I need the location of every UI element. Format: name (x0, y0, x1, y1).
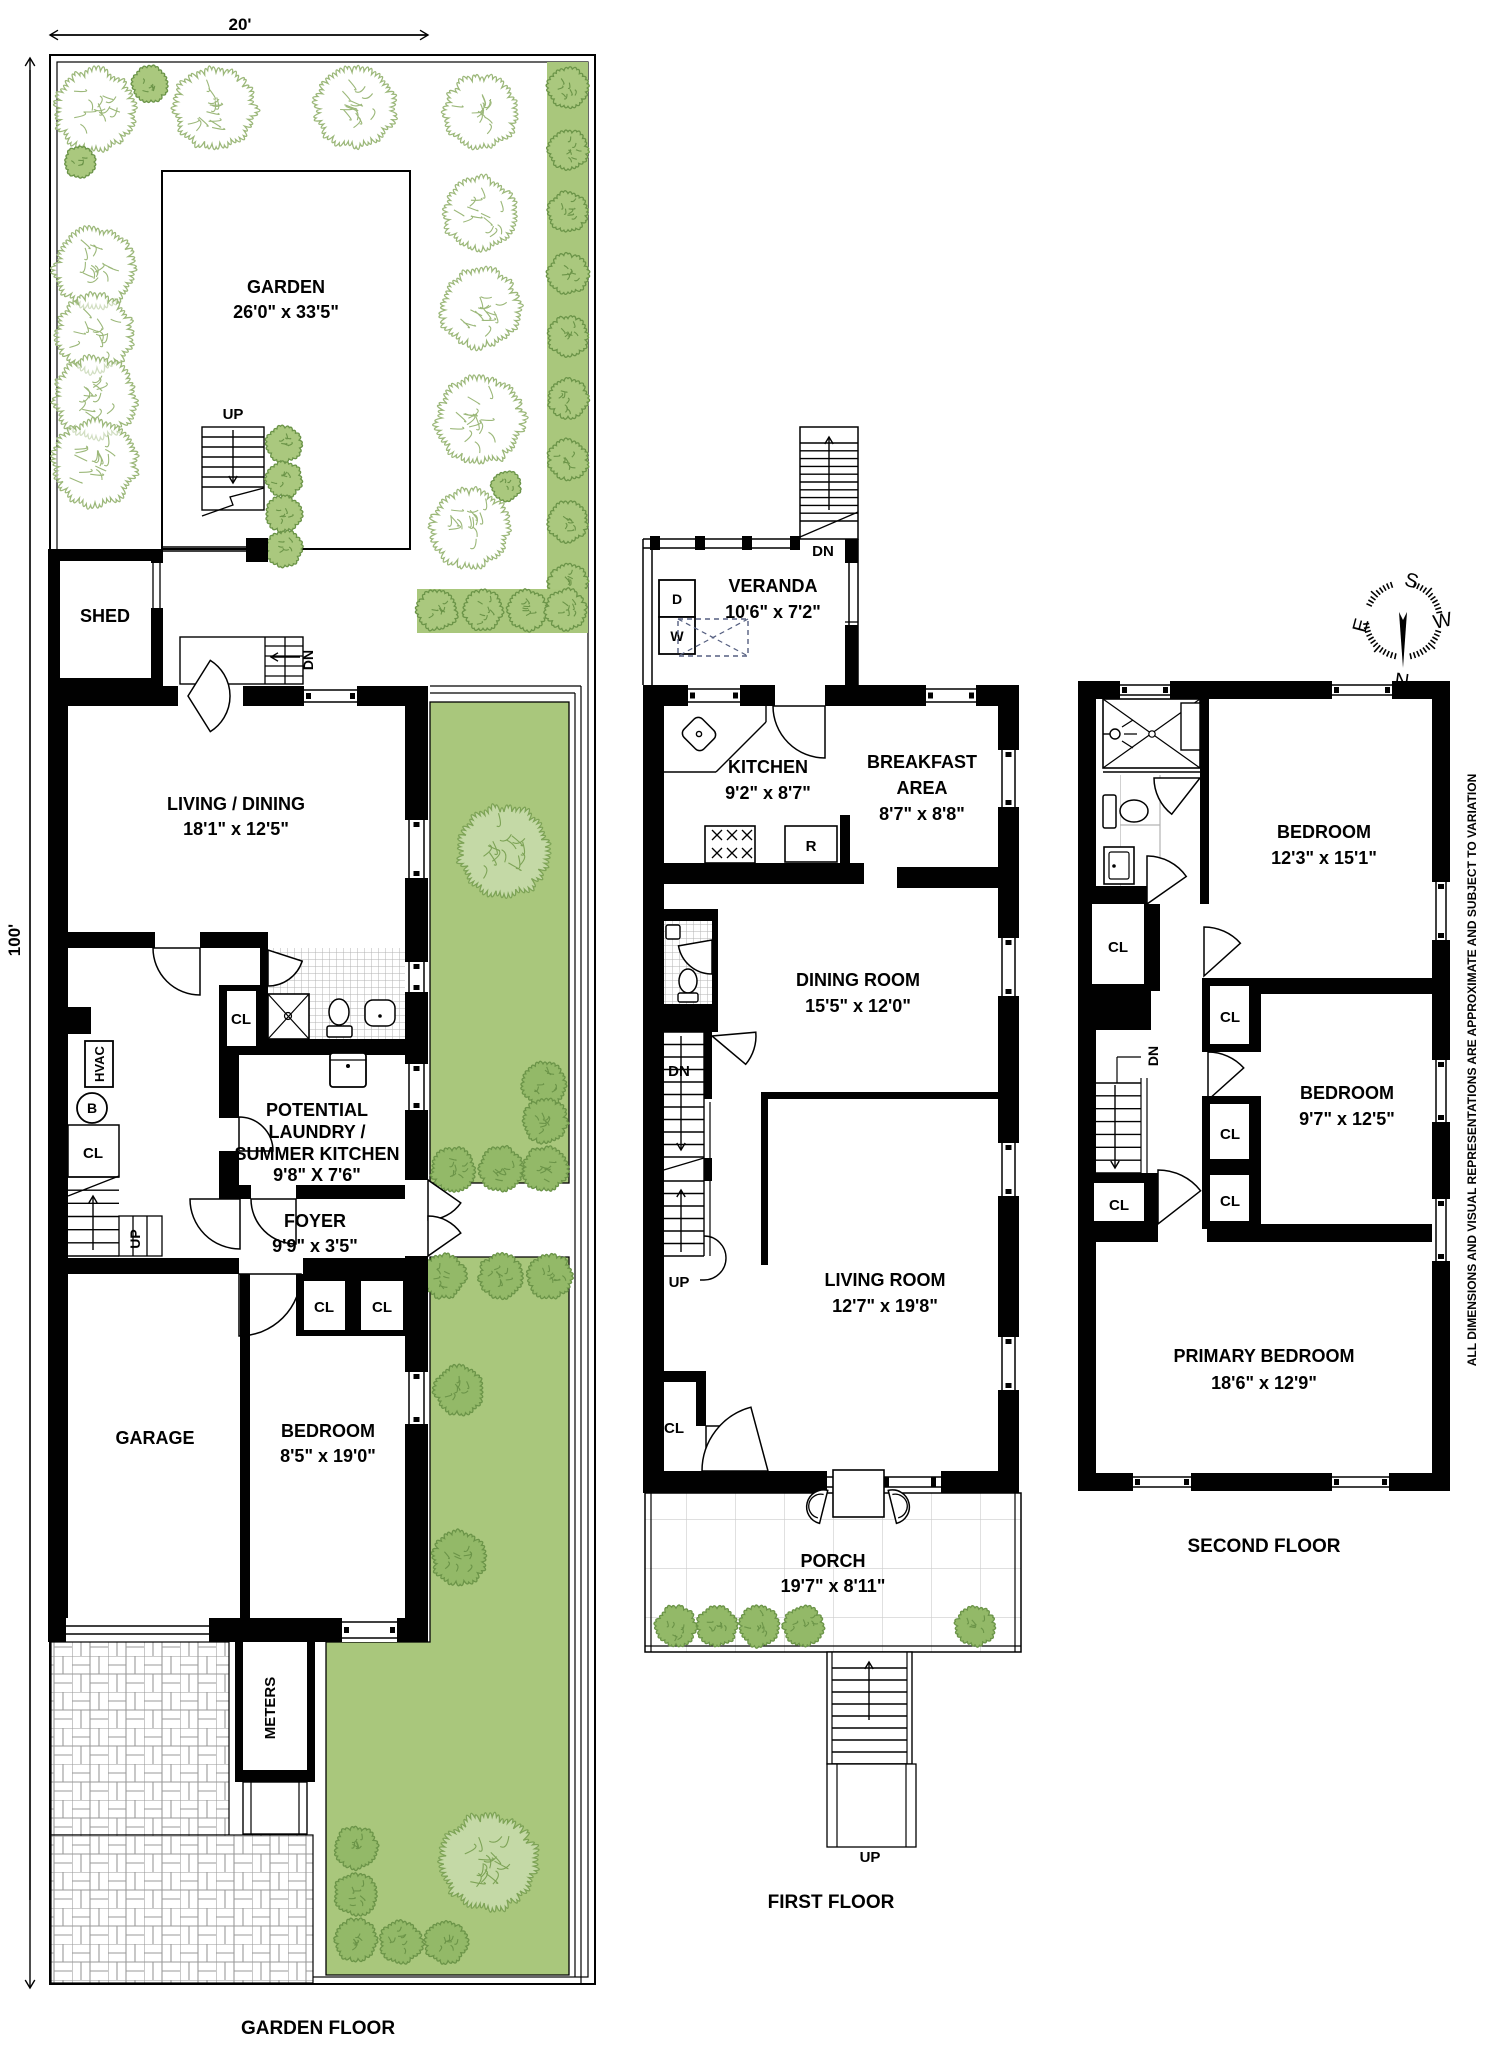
svg-text:B: B (87, 1100, 97, 1116)
svg-text:18'1" x 12'5": 18'1" x 12'5" (183, 819, 289, 839)
svg-text:CL: CL (1220, 1009, 1240, 1026)
svg-text:R: R (806, 838, 817, 855)
svg-text:SUMMER KITCHEN: SUMMER KITCHEN (235, 1144, 400, 1164)
svg-text:FIRST FLOOR: FIRST FLOOR (768, 1892, 895, 1913)
svg-text:UP: UP (860, 1849, 881, 1866)
svg-text:UP: UP (669, 1274, 690, 1291)
svg-text:9'2" x 8'7": 9'2" x 8'7" (725, 783, 811, 803)
svg-text:BEDROOM: BEDROOM (281, 1421, 375, 1441)
svg-text:GARDEN: GARDEN (247, 277, 325, 297)
svg-text:UP: UP (127, 1229, 143, 1248)
svg-text:DN: DN (1145, 1046, 1161, 1066)
svg-text:SHED: SHED (80, 606, 130, 626)
svg-text:100': 100' (5, 924, 24, 956)
svg-text:CL: CL (664, 1420, 684, 1437)
svg-text:METERS: METERS (262, 1677, 279, 1740)
svg-text:LIVING / DINING: LIVING / DINING (167, 794, 305, 814)
svg-text:CL: CL (1108, 939, 1128, 956)
svg-text:10'6" x 7'2": 10'6" x 7'2" (725, 602, 821, 622)
svg-text:CL: CL (83, 1145, 103, 1162)
svg-text:SECOND FLOOR: SECOND FLOOR (1187, 1536, 1340, 1557)
svg-text:9'9" x 3'5": 9'9" x 3'5" (272, 1236, 358, 1256)
svg-text:PRIMARY BEDROOM: PRIMARY BEDROOM (1173, 1346, 1354, 1366)
svg-text:12'3" x 15'1": 12'3" x 15'1" (1271, 848, 1377, 868)
svg-text:DN: DN (668, 1063, 690, 1080)
svg-text:CL: CL (231, 1011, 251, 1028)
svg-text:26'0" x 33'5": 26'0" x 33'5" (233, 302, 339, 322)
svg-text:ALL DIMENSIONS AND VISUAL REPR: ALL DIMENSIONS AND VISUAL REPRESENTATION… (1465, 774, 1479, 1367)
svg-text:9'7" x 12'5": 9'7" x 12'5" (1299, 1109, 1395, 1129)
svg-text:GARAGE: GARAGE (115, 1428, 194, 1448)
svg-text:CL: CL (1220, 1126, 1240, 1143)
svg-text:POTENTIAL: POTENTIAL (266, 1100, 368, 1120)
svg-text:HVAC: HVAC (92, 1045, 107, 1081)
svg-text:UP: UP (223, 406, 244, 423)
svg-text:FOYER: FOYER (284, 1211, 346, 1231)
svg-text:20': 20' (229, 15, 252, 34)
svg-text:AREA: AREA (896, 778, 947, 798)
svg-text:LIVING ROOM: LIVING ROOM (825, 1270, 946, 1290)
svg-text:CL: CL (372, 1299, 392, 1316)
svg-text:CL: CL (314, 1299, 334, 1316)
svg-text:GARDEN FLOOR: GARDEN FLOOR (241, 2018, 395, 2039)
svg-text:12'7" x 19'8": 12'7" x 19'8" (832, 1296, 938, 1316)
svg-text:18'6" x 12'9": 18'6" x 12'9" (1211, 1373, 1317, 1393)
svg-text:DINING ROOM: DINING ROOM (796, 970, 920, 990)
svg-text:19'7" x 8'11": 19'7" x 8'11" (781, 1576, 886, 1596)
svg-text:DN: DN (812, 543, 834, 560)
svg-text:DN: DN (300, 650, 316, 670)
svg-text:CL: CL (1109, 1197, 1129, 1214)
svg-text:D: D (672, 591, 682, 607)
svg-text:9'8" X 7'6": 9'8" X 7'6" (273, 1165, 361, 1185)
svg-text:KITCHEN: KITCHEN (728, 757, 808, 777)
svg-text:LAUNDRY /: LAUNDRY / (268, 1122, 365, 1142)
svg-text:VERANDA: VERANDA (728, 576, 817, 596)
svg-text:15'5" x 12'0": 15'5" x 12'0" (805, 996, 911, 1016)
svg-text:8'7" x 8'8": 8'7" x 8'8" (879, 804, 965, 824)
svg-text:CL: CL (1220, 1193, 1240, 1210)
svg-text:BEDROOM: BEDROOM (1300, 1083, 1394, 1103)
svg-text:PORCH: PORCH (800, 1551, 865, 1571)
svg-text:BEDROOM: BEDROOM (1277, 822, 1371, 842)
svg-text:8'5" x 19'0": 8'5" x 19'0" (280, 1446, 376, 1466)
svg-text:BREAKFAST: BREAKFAST (867, 752, 977, 772)
